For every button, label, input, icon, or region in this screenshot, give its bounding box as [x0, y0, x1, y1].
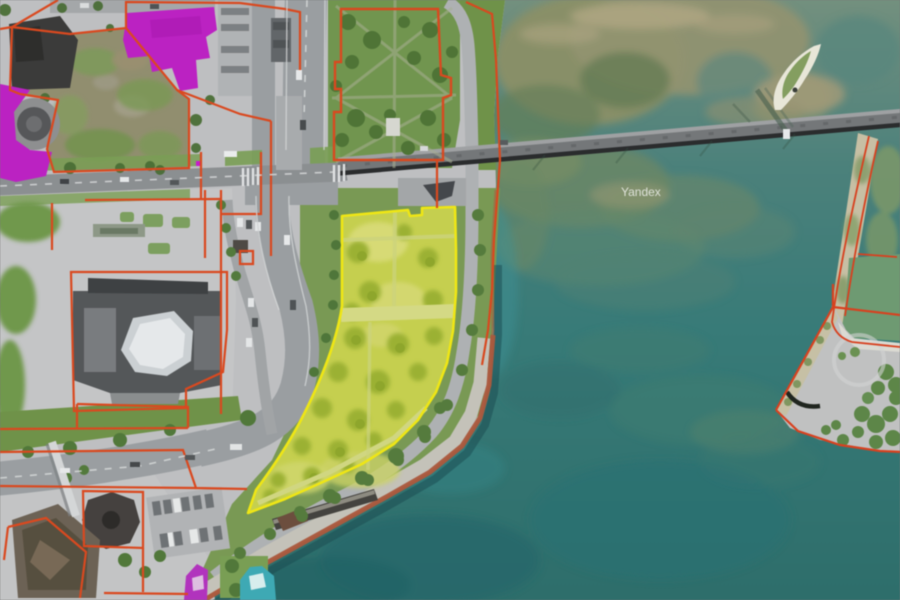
svg-text:Yandex: Yandex [621, 185, 661, 199]
